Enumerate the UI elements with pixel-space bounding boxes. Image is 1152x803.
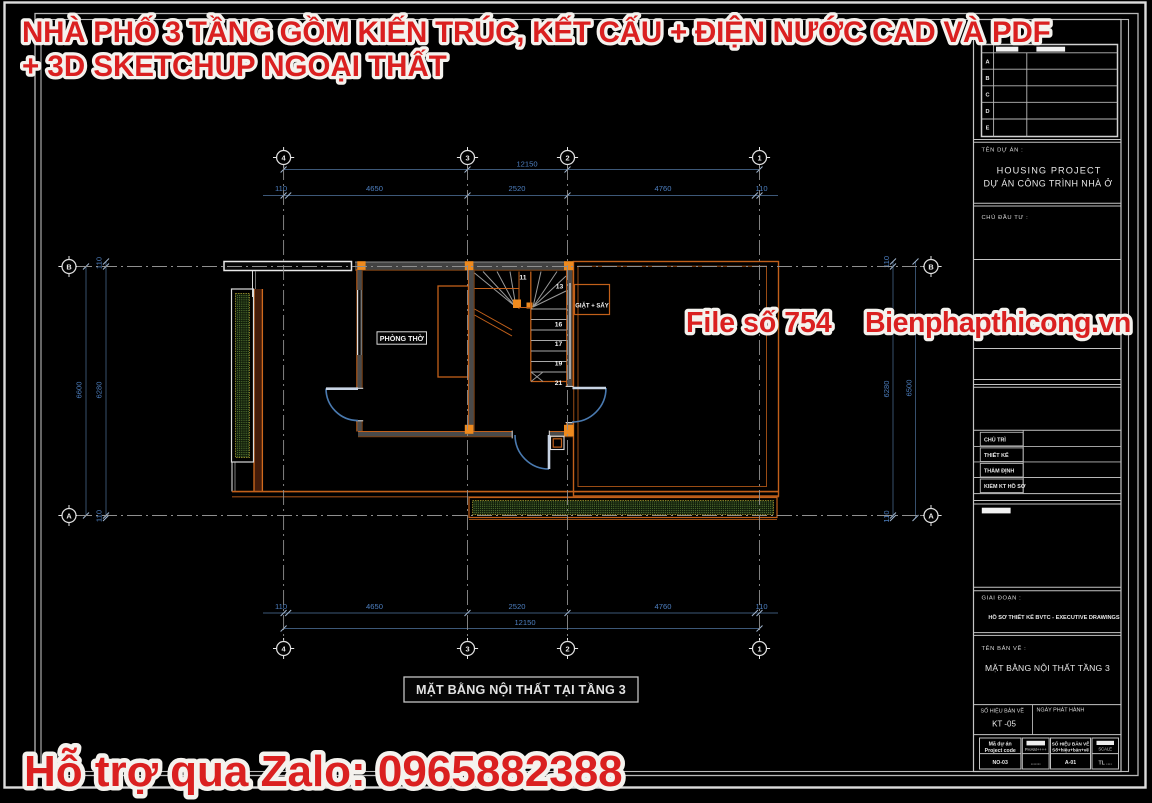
svg-text:GIẶT + SẤY: GIẶT + SẤY bbox=[575, 303, 609, 310]
svg-text:1: 1 bbox=[757, 644, 761, 653]
svg-text:Số+hiệu+bản+vẽ: Số+hiệu+bản+vẽ bbox=[1052, 747, 1089, 753]
svg-text:1: 1 bbox=[757, 153, 761, 162]
svg-text:B: B bbox=[985, 76, 989, 82]
svg-text:E: E bbox=[986, 126, 990, 132]
svg-text:NHÀ PHỐ 3 TẦNG GỒM KIẾN TRÚC,: NHÀ PHỐ 3 TẦNG GỒM KIẾN TRÚC, KẾT CẤU + … bbox=[22, 15, 1050, 49]
svg-text:13: 13 bbox=[556, 284, 564, 291]
svg-text:DỰ ÁN CÔNG TRÌNH NHÀ Ở: DỰ ÁN CÔNG TRÌNH NHÀ Ở bbox=[983, 178, 1112, 189]
svg-text:File số 754: File số 754 bbox=[686, 307, 832, 339]
svg-text:CHỦ ĐẦU TƯ :: CHỦ ĐẦU TƯ : bbox=[982, 214, 1029, 221]
svg-text:A-01: A-01 bbox=[1065, 760, 1076, 766]
svg-text:4760: 4760 bbox=[655, 602, 672, 611]
svg-text:110: 110 bbox=[95, 257, 104, 269]
svg-text:TL ....: TL .... bbox=[1098, 761, 1112, 767]
svg-text:THIẾT KẾ: THIẾT KẾ bbox=[984, 452, 1009, 459]
svg-text:MẶT BẰNG NỘI THẤT TẠI TẦNG 3: MẶT BẰNG NỘI THẤT TẠI TẦNG 3 bbox=[416, 682, 626, 697]
svg-text:17: 17 bbox=[555, 341, 563, 348]
svg-text:4650: 4650 bbox=[366, 602, 383, 611]
svg-text:3: 3 bbox=[465, 153, 469, 162]
svg-text:HOUSING PROJECT: HOUSING PROJECT bbox=[997, 166, 1102, 176]
svg-text:A: A bbox=[985, 60, 989, 66]
svg-text:4760: 4760 bbox=[655, 184, 672, 193]
svg-text:2: 2 bbox=[565, 153, 569, 162]
svg-text:C: C bbox=[985, 93, 989, 99]
svg-text:TÊN BẢN VẼ :: TÊN BẢN VẼ : bbox=[982, 644, 1027, 652]
svg-text:12150: 12150 bbox=[514, 618, 535, 627]
svg-text:B: B bbox=[928, 262, 933, 271]
svg-text:SỐ HIỆU BẢN VẼ: SỐ HIỆU BẢN VẼ bbox=[981, 707, 1025, 715]
svg-text:4650: 4650 bbox=[366, 184, 383, 193]
svg-text:KIỂM KT HỒ SƠ: KIỂM KT HỒ SƠ bbox=[984, 483, 1026, 490]
svg-text:2520: 2520 bbox=[509, 602, 526, 611]
svg-text:GIAI ĐOẠN :: GIAI ĐOẠN : bbox=[982, 596, 1022, 602]
svg-text:SCALE: SCALE bbox=[1098, 746, 1112, 751]
svg-text:21: 21 bbox=[555, 380, 563, 387]
svg-text:2: 2 bbox=[565, 644, 569, 653]
svg-text:NGÀY PHÁT HÀNH: NGÀY PHÁT HÀNH bbox=[1037, 707, 1085, 714]
svg-text:D: D bbox=[985, 109, 989, 115]
svg-text:11: 11 bbox=[519, 275, 526, 282]
svg-text:.......: ....... bbox=[1031, 761, 1042, 767]
svg-text:Project code: Project code bbox=[985, 748, 1016, 754]
svg-text:HỒ SƠ THIẾT KẾ BVTC - EXECUTIV: HỒ SƠ THIẾT KẾ BVTC - EXECUTIVE DRAWINGS bbox=[988, 614, 1120, 621]
svg-text:Mã dự án: Mã dự án bbox=[989, 742, 1012, 748]
svg-text:+ 3D SKETCHUP NGOẠI THẤT: + 3D SKETCHUP NGOẠI THẤT bbox=[22, 49, 447, 83]
svg-text:110: 110 bbox=[275, 184, 287, 193]
svg-text:A: A bbox=[928, 511, 934, 520]
svg-text:19: 19 bbox=[555, 361, 563, 368]
svg-text:16: 16 bbox=[555, 322, 563, 329]
svg-text:6500: 6500 bbox=[905, 380, 914, 397]
svg-text:Hỗ trợ qua Zalo: 0965882388: Hỗ trợ qua Zalo: 0965882388 bbox=[24, 746, 623, 796]
svg-text:NO-03: NO-03 bbox=[993, 760, 1008, 766]
svg-text:6280: 6280 bbox=[882, 381, 891, 398]
svg-text:B: B bbox=[66, 262, 71, 271]
svg-text:110: 110 bbox=[882, 510, 891, 522]
svg-text:THẨM ĐỊNH: THẨM ĐỊNH bbox=[984, 468, 1014, 475]
svg-text:6280: 6280 bbox=[95, 382, 104, 399]
svg-text:SỐ HIỆU BẢN VẼ: SỐ HIỆU BẢN VẼ bbox=[1052, 740, 1090, 747]
svg-text:A: A bbox=[66, 511, 72, 520]
svg-text:PHÒNG THỜ: PHÒNG THỜ bbox=[380, 334, 425, 343]
svg-text:MẶT BẰNG NỘI THẤT TẦNG 3: MẶT BẰNG NỘI THẤT TẦNG 3 bbox=[985, 663, 1110, 673]
svg-text:110: 110 bbox=[755, 602, 767, 611]
svg-text:12150: 12150 bbox=[516, 160, 537, 169]
svg-text:PHAM++++: PHAM++++ bbox=[1025, 747, 1047, 752]
svg-text:110: 110 bbox=[95, 510, 104, 522]
svg-text:CHỦ TRÌ: CHỦ TRÌ bbox=[984, 436, 1006, 444]
svg-text:2520: 2520 bbox=[509, 184, 526, 193]
svg-text:6600: 6600 bbox=[75, 382, 84, 399]
svg-text:TÊN DỰ ÁN :: TÊN DỰ ÁN : bbox=[982, 146, 1024, 154]
svg-text:110: 110 bbox=[275, 602, 287, 611]
svg-text:KT -05: KT -05 bbox=[992, 720, 1016, 729]
svg-text:Bienphapthicong.vn: Bienphapthicong.vn bbox=[865, 307, 1131, 339]
svg-text:110: 110 bbox=[755, 184, 767, 193]
svg-text:3: 3 bbox=[465, 644, 469, 653]
